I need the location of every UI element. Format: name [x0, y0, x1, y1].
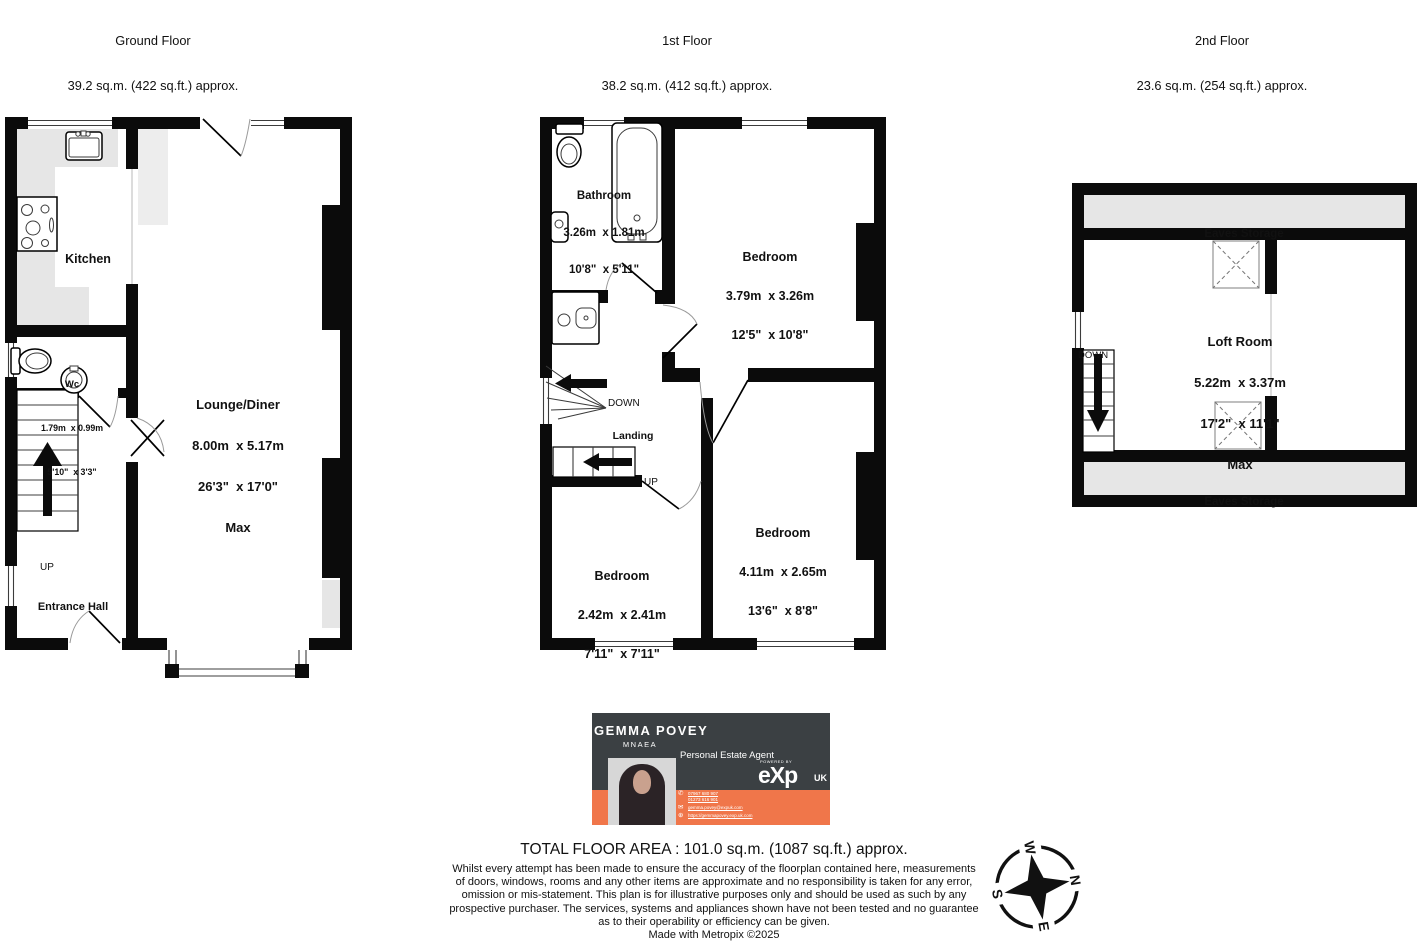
globe-icon: ⊕ — [678, 813, 688, 819]
agent-website: https://gemmapovey.exp.uk.com — [688, 813, 752, 819]
lounge-diner-label: Lounge/Diner 8.00m x 5.17m 26'3" x 17'0"… — [192, 371, 284, 548]
bathroom-label: Bathroom 3.26m x 1.81m 10'8" x 5'11" — [563, 166, 644, 288]
agent-name-block: GEMMA POVEY MNAEA — [594, 723, 686, 749]
wc-label: Wc 1.79m x 0.99m 5'10" x 3'3" — [41, 345, 103, 495]
phone-icon: ✆ — [678, 791, 688, 797]
floor-title-text: 2nd Floor — [1137, 33, 1308, 48]
contact-email-row: ✉ gemma.povey@expuk.com — [678, 805, 752, 811]
exp-uk-logo: POWERED BY eXp UK — [758, 759, 797, 788]
email-icon: ✉ — [678, 805, 688, 811]
landing-label: Landing — [613, 408, 654, 453]
logo-exp: eXp — [758, 762, 797, 788]
bedroom2-label: Bedroom 4.11m x 2.65m 13'6" x 8'8" — [739, 501, 827, 631]
bathroom-toilet — [556, 124, 583, 167]
disclaimer: Whilst every attempt has been made to en… — [424, 863, 1004, 942]
ground-floor-title: Ground Floor 39.2 sq.m. (422 sq.ft.) app… — [68, 3, 239, 108]
made-with: Made with Metropix ©2025 — [424, 929, 1004, 942]
eaves-storage-bottom-label: Eaves Storage — [1204, 472, 1283, 521]
eaves-storage-top-label: Eaves Storage — [1204, 204, 1283, 253]
bedroom1-label: Bedroom 3.79m x 3.26m 12'5" x 10'8" — [726, 225, 814, 355]
floor-area-text: 38.2 sq.m. (412 sq.ft.) approx. — [602, 78, 773, 93]
floor-area-text: 23.6 sq.m. (254 sq.ft.) approx. — [1137, 78, 1308, 93]
agent-card: GEMMA POVEY MNAEA Personal Estate Agent … — [592, 713, 830, 825]
logo-uk: UK — [814, 773, 827, 783]
agent-credentials: MNAEA — [594, 740, 686, 749]
agent-contact: ✆ 07967 680 907 01273 616 901 ✉ gemma.po… — [678, 791, 752, 821]
agent-phone-2: 01273 616 901 — [688, 797, 718, 803]
up-label-first: UP — [644, 456, 658, 499]
landing-vanity — [552, 292, 599, 344]
loft-room-label: Loft Room 5.22m x 3.37m 17'2" x 11'1" Ma… — [1194, 308, 1286, 485]
agent-email: gemma.povey@expuk.com — [688, 805, 743, 811]
bedroom3-label: Bedroom 2.42m x 2.41m 7'11" x 7'11" — [578, 544, 666, 674]
second-floor-title: 2nd Floor 23.6 sq.m. (254 sq.ft.) approx… — [1137, 3, 1308, 108]
kitchen-sink — [66, 131, 102, 160]
floor-area-text: 39.2 sq.m. (422 sq.ft.) approx. — [68, 78, 239, 93]
bay-window — [165, 638, 309, 678]
contact-phone-row: ✆ 07967 680 907 01273 616 901 — [678, 791, 752, 803]
down-label-second: DOWN — [1078, 330, 1108, 371]
agent-photo — [608, 758, 676, 825]
contact-web-row: ⊕ https://gemmapovey.exp.uk.com — [678, 813, 752, 819]
agent-name: GEMMA POVEY — [594, 723, 686, 738]
kitchen-label: Kitchen — [65, 227, 111, 279]
floorplan-page: N E S W Ground Floor 39.2 sq.m. (422 sq.… — [0, 0, 1424, 943]
entrance-hall-label: Entrance Hall — [38, 578, 108, 626]
kitchen-hob — [17, 197, 57, 251]
floor-title-text: 1st Floor — [602, 33, 773, 48]
total-floor-area: TOTAL FLOOR AREA : 101.0 sq.m. (1087 sq.… — [520, 841, 907, 859]
floor-title-text: Ground Floor — [68, 33, 239, 48]
first-floor-title: 1st Floor 38.2 sq.m. (412 sq.ft.) approx… — [602, 3, 773, 108]
